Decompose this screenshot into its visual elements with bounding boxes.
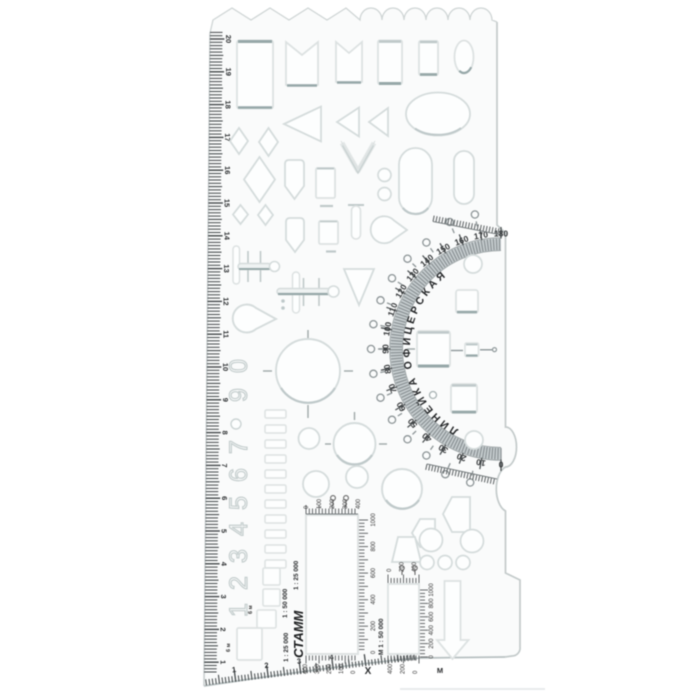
svg-text:13: 13 <box>222 264 231 272</box>
svg-text:400: 400 <box>429 625 435 636</box>
svg-text:1 : 50 000: 1 : 50 000 <box>282 588 289 618</box>
svg-text:1 : 25 000: 1 : 25 000 <box>283 632 290 662</box>
svg-text:200: 200 <box>371 620 377 631</box>
svg-text:100: 100 <box>317 498 323 509</box>
svg-text:2: 2 <box>219 627 228 631</box>
svg-text:16: 16 <box>223 166 232 174</box>
svg-text:200: 200 <box>429 638 435 649</box>
svg-text:7: 7 <box>220 463 229 467</box>
svg-text:М 1 : 50 000: М 1 : 50 000 <box>378 618 385 655</box>
svg-text:300: 300 <box>315 663 321 674</box>
svg-text:X: X <box>365 666 372 677</box>
svg-text:11: 11 <box>221 330 230 338</box>
svg-text:15: 15 <box>223 199 232 207</box>
svg-text:1 : 25 000: 1 : 25 000 <box>293 560 300 590</box>
svg-text:6 м: 6 м <box>226 643 232 652</box>
svg-text:18: 18 <box>224 100 233 108</box>
svg-text:19: 19 <box>224 68 233 76</box>
svg-text:400: 400 <box>303 663 309 674</box>
svg-text:200: 200 <box>401 663 407 674</box>
svg-text:80: 80 <box>382 363 394 374</box>
svg-text:6: 6 <box>225 468 253 482</box>
svg-text:0: 0 <box>498 460 503 470</box>
svg-text:0: 0 <box>413 670 419 674</box>
svg-text:600: 600 <box>429 611 435 622</box>
svg-text:800: 800 <box>371 541 377 552</box>
svg-text:100: 100 <box>339 663 345 674</box>
svg-text:14: 14 <box>222 232 231 241</box>
svg-text:СТАММ: СТАММ <box>291 609 306 658</box>
svg-text:20: 20 <box>224 35 233 43</box>
svg-text:1000: 1000 <box>429 583 435 597</box>
svg-text:10: 10 <box>475 457 486 469</box>
svg-text:400: 400 <box>371 594 377 605</box>
svg-text:3: 3 <box>225 549 253 563</box>
svg-text:3: 3 <box>219 595 228 599</box>
svg-text:М: М <box>437 666 443 675</box>
svg-text:7: 7 <box>225 440 253 454</box>
svg-text:6 м: 6 м <box>248 605 254 614</box>
svg-text:400: 400 <box>388 663 394 674</box>
svg-text:1000: 1000 <box>371 513 377 527</box>
svg-text:1: 1 <box>218 660 227 664</box>
svg-text:4: 4 <box>225 522 253 536</box>
svg-text:5: 5 <box>225 496 253 510</box>
svg-text:9: 9 <box>225 388 253 402</box>
svg-text:800: 800 <box>429 598 435 609</box>
svg-text:0: 0 <box>225 359 253 373</box>
svg-text:2: 2 <box>225 576 253 590</box>
svg-text:12: 12 <box>222 297 231 305</box>
svg-text:400: 400 <box>356 498 362 509</box>
svg-text:600: 600 <box>371 567 377 578</box>
svg-text:200: 200 <box>327 663 333 674</box>
svg-text:0: 0 <box>351 670 357 674</box>
svg-text:8: 8 <box>221 431 230 435</box>
